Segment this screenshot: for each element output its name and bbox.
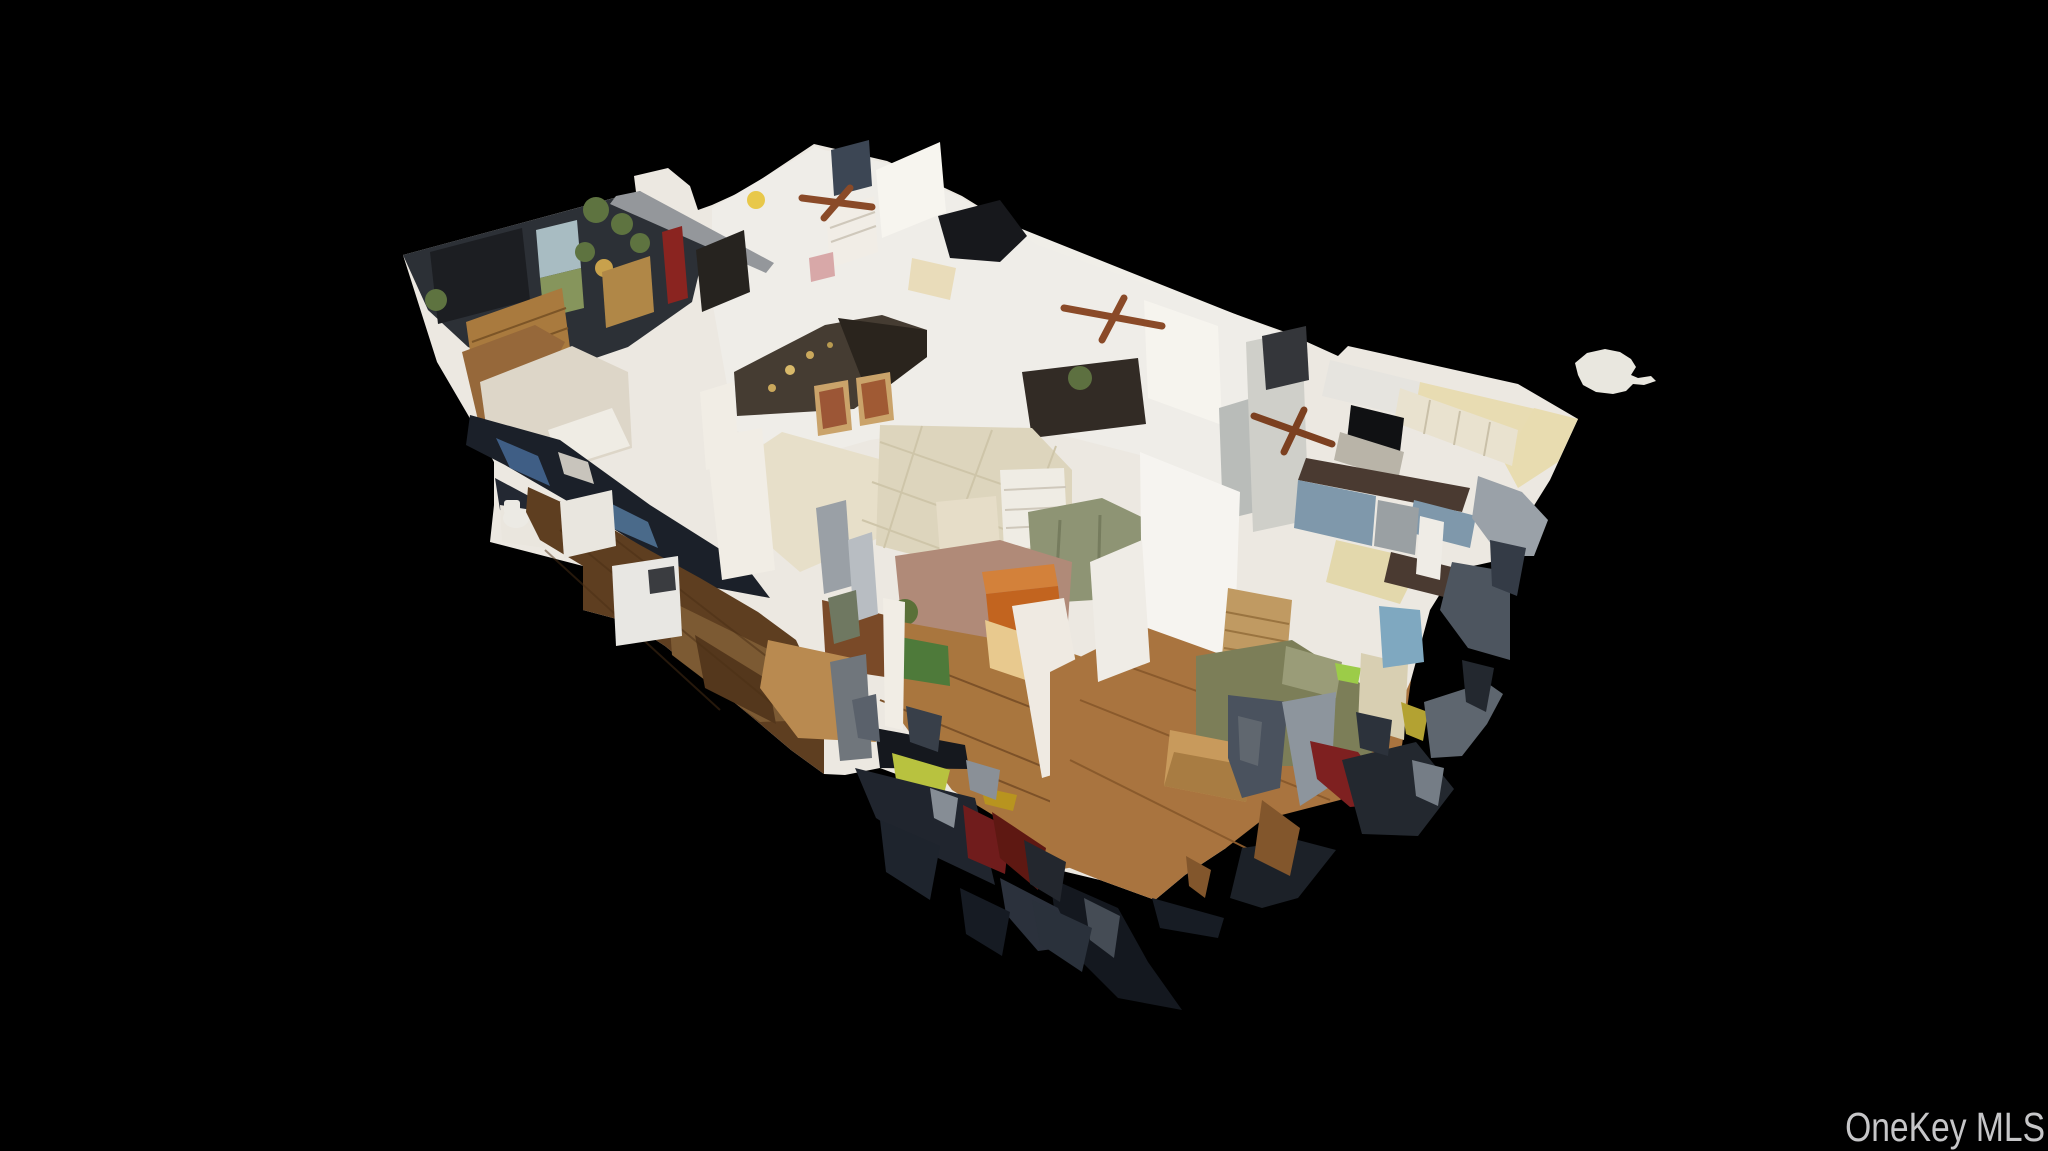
svg-text:OneKey MLS: OneKey MLS [1845, 1104, 2045, 1150]
